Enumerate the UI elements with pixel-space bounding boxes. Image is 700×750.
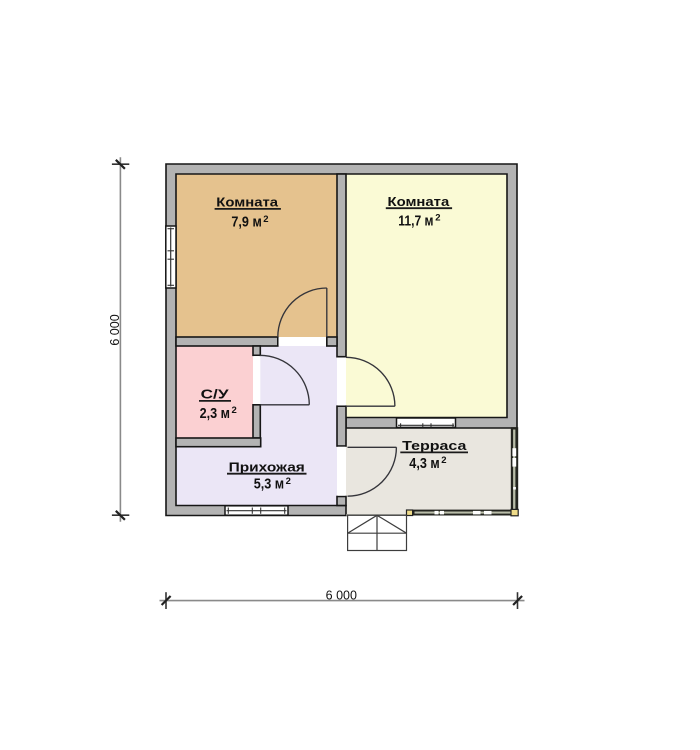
- svg-text:7,9 м: 7,9 м: [231, 214, 261, 231]
- svg-text:2: 2: [441, 455, 446, 466]
- svg-text:4,3 м: 4,3 м: [409, 455, 439, 472]
- svg-text:2,3 м: 2,3 м: [200, 405, 230, 422]
- svg-text:2: 2: [435, 213, 440, 224]
- svg-text:6 000: 6 000: [108, 314, 122, 345]
- svg-text:Терраса: Терраса: [402, 439, 468, 453]
- svg-text:6 000: 6 000: [326, 588, 357, 602]
- svg-text:Прихожая: Прихожая: [229, 460, 305, 474]
- svg-text:Комната: Комната: [388, 195, 451, 209]
- svg-text:Комната: Комната: [216, 196, 279, 210]
- svg-text:С/У: С/У: [201, 388, 229, 402]
- svg-text:2: 2: [263, 214, 268, 225]
- svg-text:2: 2: [286, 476, 291, 487]
- svg-text:5,3 м: 5,3 м: [254, 476, 284, 493]
- svg-text:11,7 м: 11,7 м: [398, 212, 433, 229]
- svg-text:2: 2: [232, 405, 237, 416]
